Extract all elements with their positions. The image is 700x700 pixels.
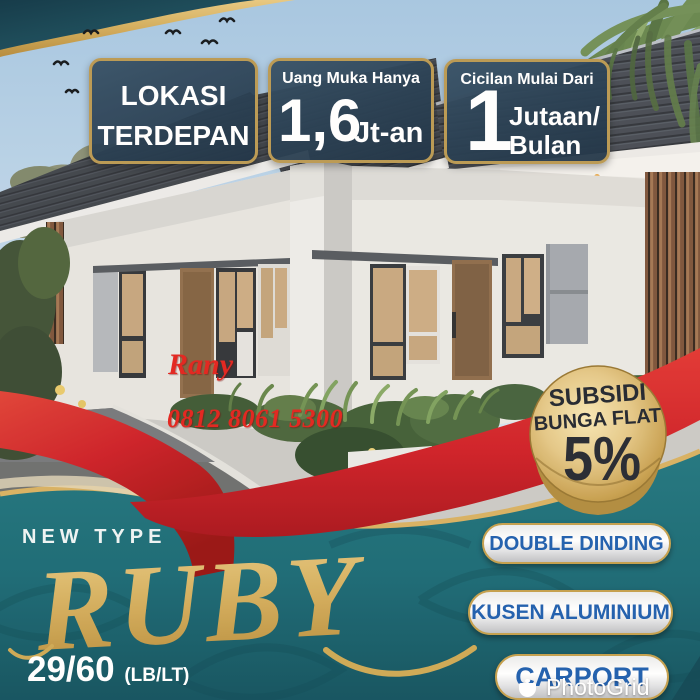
svg-text:5%: 5% — [563, 425, 641, 494]
